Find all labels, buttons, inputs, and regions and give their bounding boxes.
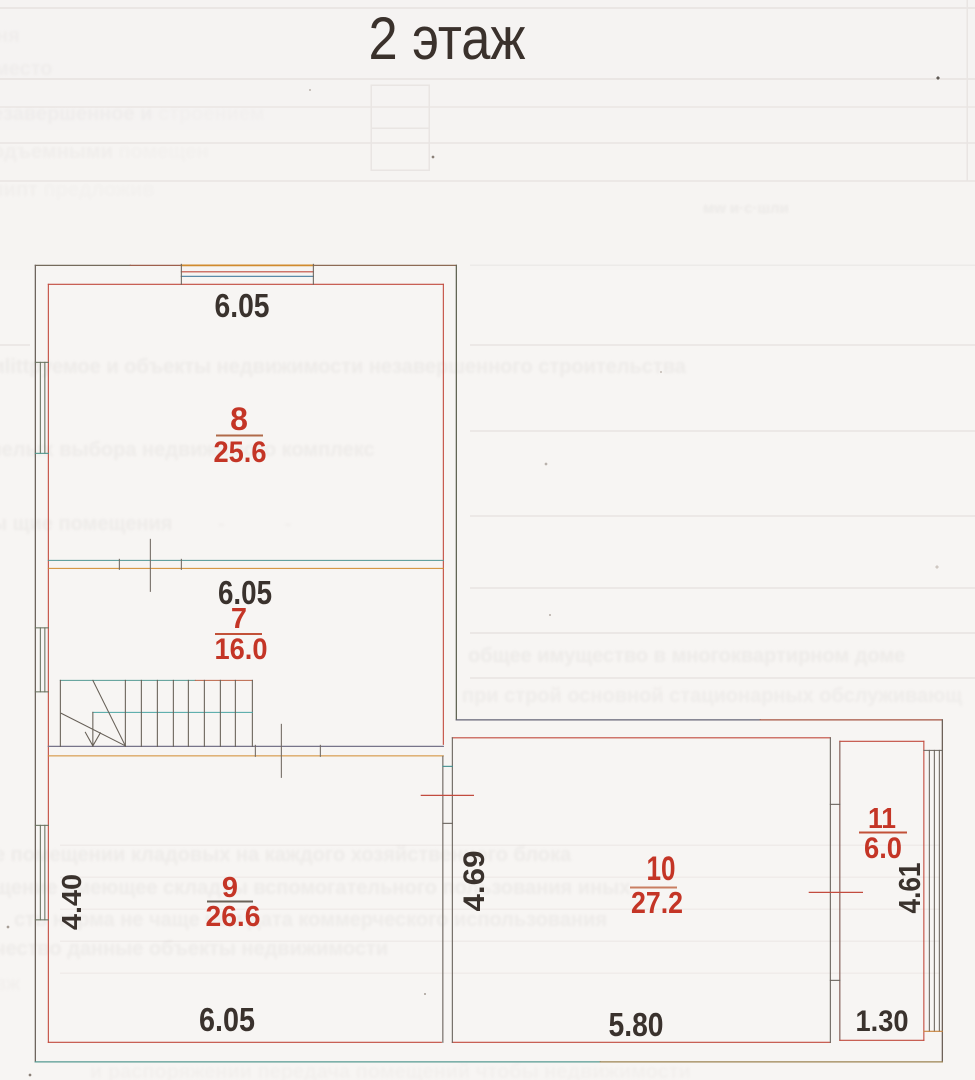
- svg-text:общее имущество в многоквартир: общее имущество в многоквартирном доме: [468, 645, 905, 667]
- svg-text:мw и·с·шли: мw и·с·шли: [703, 200, 789, 217]
- svg-text:при строй основной стационарны: при строй основной стационарных обслужив…: [462, 685, 962, 707]
- svg-text:16.0: 16.0: [215, 633, 268, 666]
- svg-text:11: 11: [868, 803, 896, 835]
- svg-text:4.40: 4.40: [56, 874, 87, 930]
- svg-text:2 этаж: 2 этаж: [369, 5, 526, 72]
- svg-text:1.30: 1.30: [856, 1005, 909, 1038]
- svg-text:6.05: 6.05: [199, 1001, 255, 1038]
- svg-text:5.80: 5.80: [609, 1006, 664, 1043]
- svg-text:26.6: 26.6: [206, 901, 261, 933]
- svg-text:езавершенное и строением: езавершенное и строением: [0, 103, 265, 125]
- svg-text:яипт предложив: яипт предложив: [0, 179, 155, 201]
- svg-text:27.2: 27.2: [631, 885, 683, 920]
- svg-text:вж: вж: [0, 973, 21, 995]
- svg-text:9: 9: [222, 872, 238, 904]
- svg-text:10: 10: [647, 850, 676, 888]
- svg-text:8: 8: [230, 401, 248, 437]
- svg-text:7: 7: [231, 603, 247, 635]
- svg-text:4.61: 4.61: [892, 863, 927, 914]
- svg-text:25.6: 25.6: [214, 436, 267, 469]
- svg-text:6.0: 6.0: [864, 832, 902, 865]
- svg-text:ня: ня: [0, 25, 20, 47]
- svg-text:место: место: [0, 58, 53, 80]
- svg-text:одъемными помещен: одъемными помещен: [0, 141, 208, 163]
- svg-text:и распоряжении передача помеще: и распоряжении передача помещений чтобы …: [90, 1061, 691, 1080]
